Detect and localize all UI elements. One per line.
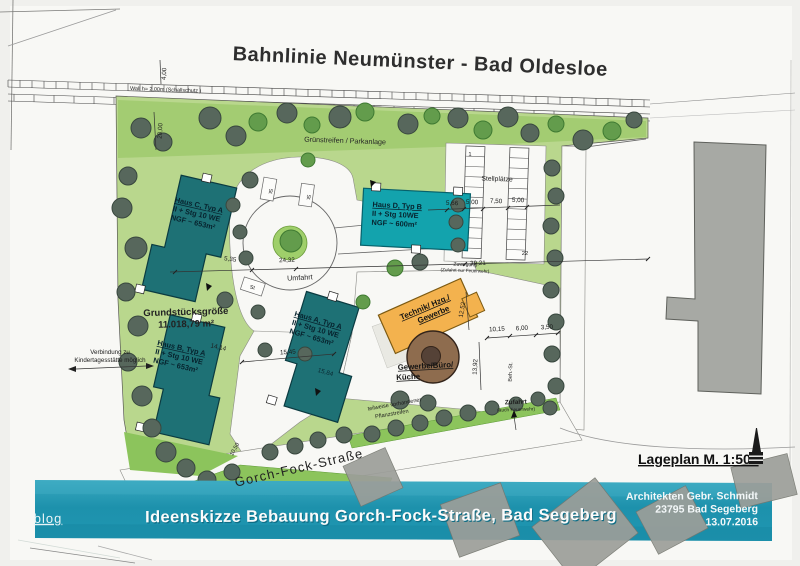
svg-text:Verbindung zu: Verbindung zu [90,349,130,356]
scanned-site-plan: Bahnlinie Neumünster - Bad Oldesloe Wall… [0,0,800,566]
architect-line-2: 23795 Bad Segeberg [655,503,758,516]
svg-text:Zufahrt: Zufahrt [505,399,528,407]
architect-line-3: 13.07.2016 [705,516,758,528]
svg-text:11.018,79 m²: 11.018,79 m² [158,318,214,330]
dim-24-32: 24,32 [279,257,295,265]
architect-line-1: Architekten Gebr. Schmidt [626,490,758,503]
dim-20-00: 20,00 [156,122,164,139]
stellplaetze-label: Stellplätze [481,175,513,183]
st-label-2: St [305,194,311,200]
dim-6-00: 6,00 [516,325,529,333]
dim-7-50: 7,50 [490,198,503,205]
beh-st-label: Beh.-St. [508,362,515,382]
svg-text:Küche: Küche [396,372,421,382]
blog-watermark: blog [34,511,63,526]
dim-3-50: 3,50 [541,324,554,332]
svg-text:Kindertagesstätte möglich: Kindertagesstätte möglich [74,357,146,364]
dim-10-15: 10,15 [489,326,506,334]
stall-number-first: 1 [468,152,471,158]
haus-d-label: Haus D, Typ B II + Stg 10WE NGF ~ 600m² [371,200,422,230]
dim-4-00: 4,00 [161,67,169,80]
dim-5-00-a: 5,00 [466,199,479,206]
umfahrt-label: Umfahrt [287,272,313,282]
stall-number-last: 22 [522,251,528,257]
site-plan-drawing: Bahnlinie Neumünster - Bad Oldesloe Wall… [0,0,800,566]
svg-text:Grundstücksgröße: Grundstücksgröße [143,306,228,319]
scale-label: Lageplan M. 1:500 [638,451,759,467]
dim-5-66: 5,66 [446,200,459,207]
dim-13-92: 13,92 [472,358,480,375]
dim-15-45: 15,45 [280,348,297,356]
banner-title: Ideenskizze Bebauung Gorch-Fock-Straße, … [145,506,617,526]
dim-5-00-b: 5,00 [512,197,525,204]
